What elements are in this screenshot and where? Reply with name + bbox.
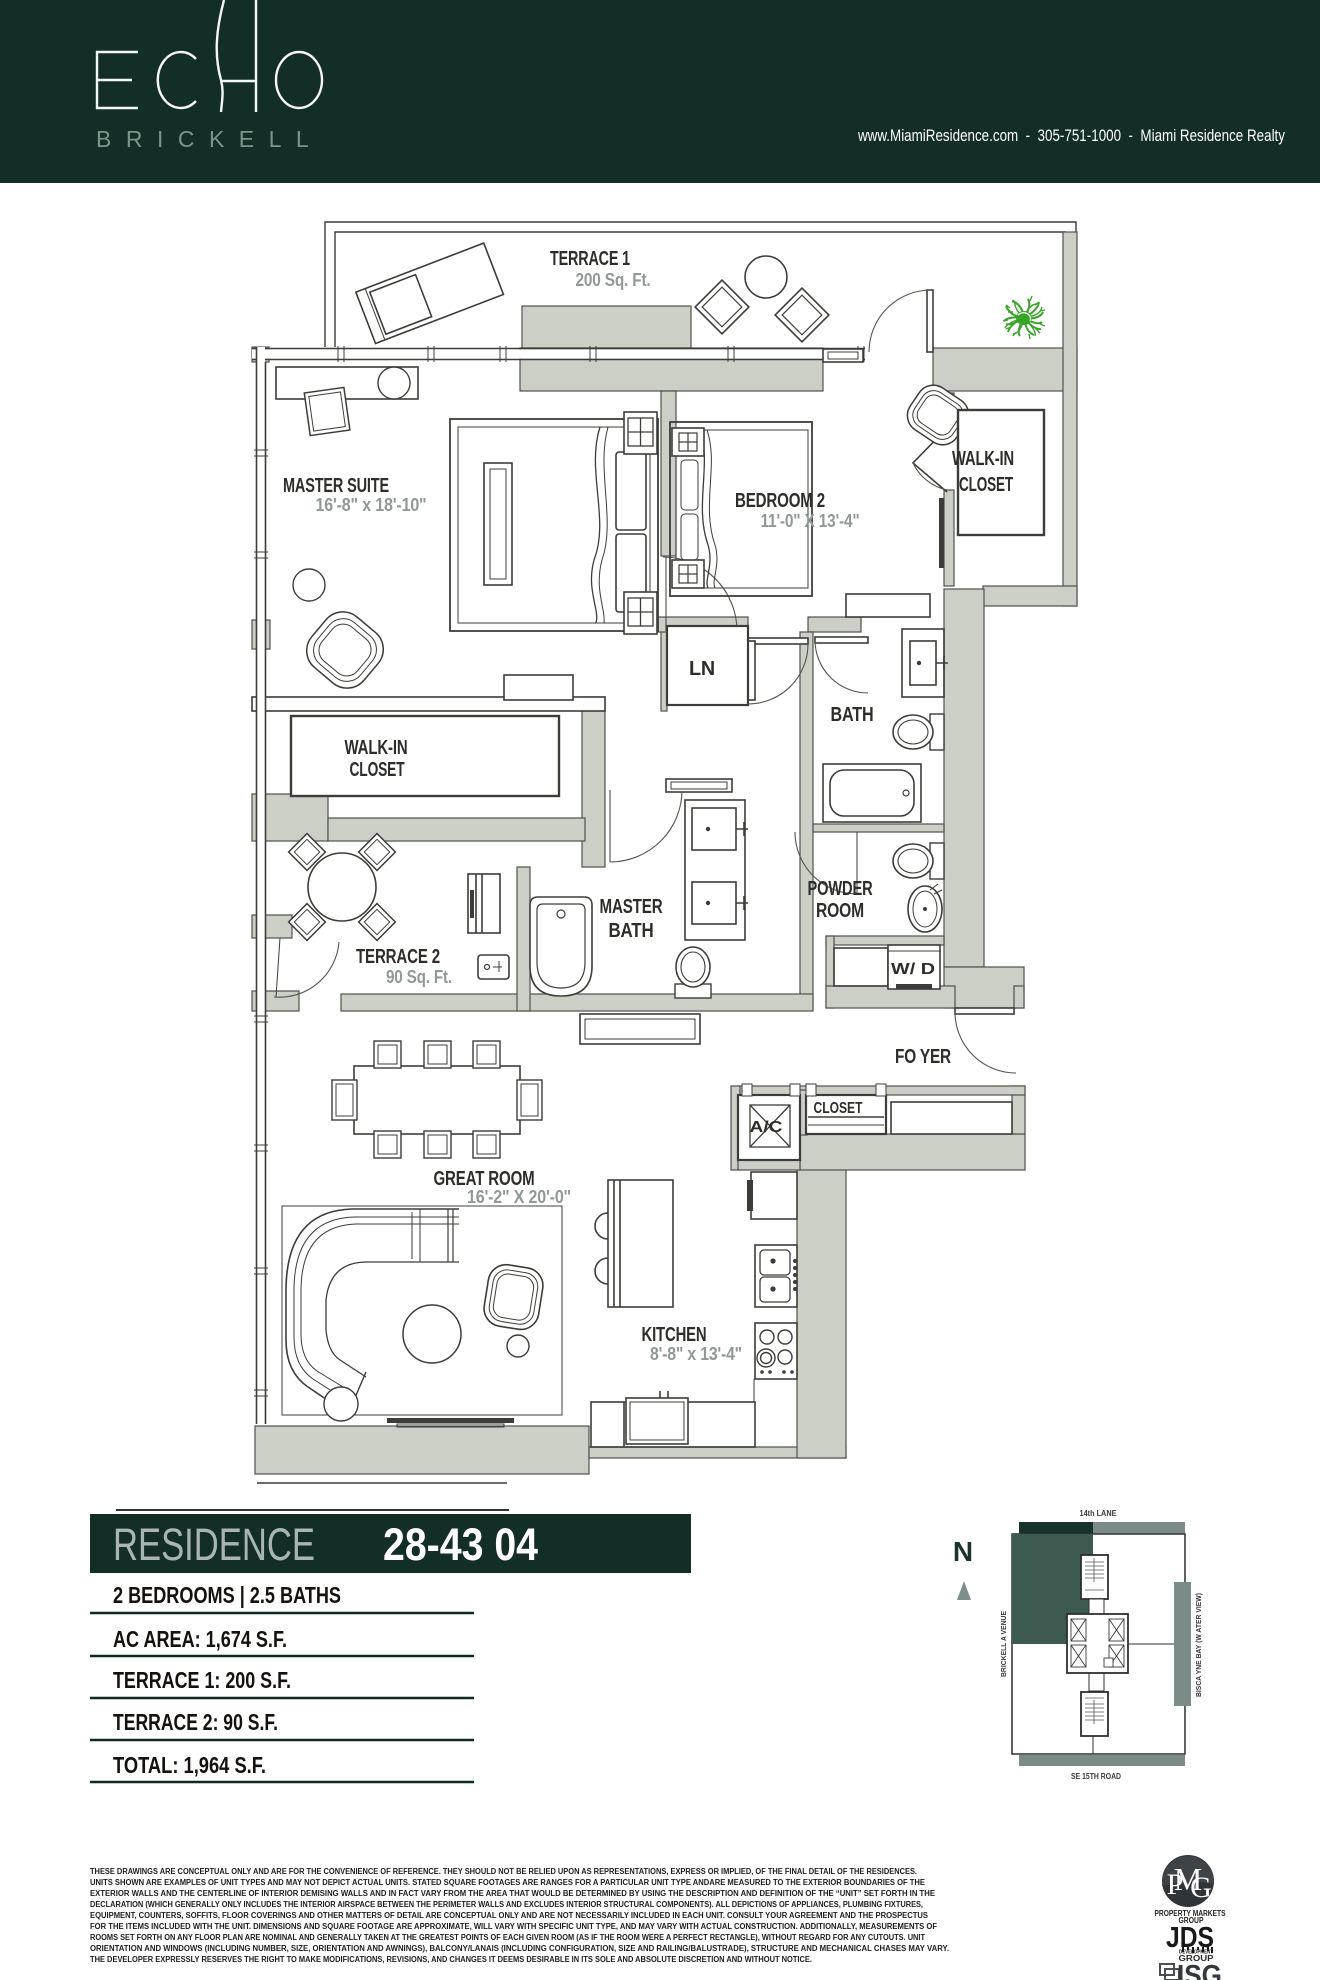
svg-text:BATH: BATH: [831, 704, 874, 726]
svg-text:200 Sq. Ft.: 200 Sq. Ft.: [576, 270, 651, 290]
svg-text:SE 15TH ROAD: SE 15TH ROAD: [1071, 1772, 1121, 1781]
svg-text:POWDER: POWDER: [808, 878, 874, 900]
svg-text:WALK-IN: WALK-IN: [345, 737, 408, 759]
svg-text:BATH: BATH: [609, 920, 654, 942]
svg-text:EQUIPMENT, COUNTERS, SOFFITS,: EQUIPMENT, COUNTERS, SOFFITS, FLOOR COVE…: [90, 1910, 928, 1920]
svg-text:90 Sq. Ft.: 90 Sq. Ft.: [386, 967, 452, 987]
svg-text:TERRACE 1: 200 S.F.: TERRACE 1: 200 S.F.: [113, 1667, 291, 1693]
svg-text:RESIDENCE: RESIDENCE: [113, 1519, 315, 1570]
svg-text:FOR THE ITEMS INCLUDED WITH TH: FOR THE ITEMS INCLUDED WITH THE UNIT. DI…: [90, 1921, 937, 1931]
svg-text:KITCHEN: KITCHEN: [642, 1324, 707, 1346]
svg-text:www.MiamiResidence.com - 305: www.MiamiResidence.com - 305-751-1000 - …: [857, 126, 1285, 145]
svg-text:W/ D: W/ D: [891, 961, 935, 978]
svg-text:BISCA YNE BAY (W ATER VIEW): BISCA YNE BAY (W ATER VIEW): [1196, 1593, 1203, 1697]
svg-text:14th LANE: 14th LANE: [1080, 1509, 1118, 1518]
svg-text:LN: LN: [689, 658, 715, 680]
svg-text:BRICKELL: BRICKELL: [96, 126, 323, 152]
svg-text:UNITS SHOWN ARE EXAMPLES OF UN: UNITS SHOWN ARE EXAMPLES OF UNIT TYPES A…: [90, 1877, 925, 1887]
svg-text:ISG: ISG: [1177, 1960, 1222, 1980]
svg-text:2 BEDROOMS | 2.5 BATHS: 2 BEDROOMS | 2.5 BATHS: [113, 1582, 341, 1608]
svg-text:ROOM: ROOM: [816, 900, 864, 922]
svg-text:16'-8" x 18'-10": 16'-8" x 18'-10": [316, 495, 427, 515]
svg-text:ORIENTATION AND WINDOWS (INCLU: ORIENTATION AND WINDOWS (INCLUDING NUMBE…: [90, 1943, 949, 1953]
svg-text:TERRACE 2: TERRACE 2: [356, 946, 440, 968]
svg-text:11'-0" X 13'-4": 11'-0" X 13'-4": [761, 511, 860, 531]
svg-text:ROOMS SET FORTH ON ANY FLOOR P: ROOMS SET FORTH ON ANY FLOOR PLAN ARE NO…: [90, 1932, 926, 1942]
svg-text:N: N: [953, 1536, 973, 1567]
svg-text:DECLARATION (WHICH GENERALLY O: DECLARATION (WHICH GENERALLY ONLY INCLUD…: [90, 1899, 923, 1909]
svg-text:TERRACE 1: TERRACE 1: [550, 248, 630, 270]
svg-text:8'-8" x 13'-4": 8'-8" x 13'-4": [650, 1344, 742, 1364]
svg-text:MASTER: MASTER: [600, 896, 664, 918]
svg-text:A/C: A/C: [750, 1119, 784, 1136]
svg-text:CLOSET: CLOSET: [350, 759, 405, 781]
svg-text:G: G: [1190, 1871, 1212, 1904]
svg-text:THE DEVELOPER EXPRESSLY RESERV: THE DEVELOPER EXPRESSLY RESERVES THE RIG…: [90, 1954, 812, 1964]
svg-text:CLOSET: CLOSET: [959, 474, 1013, 496]
svg-text:28-43 04: 28-43 04: [383, 1519, 538, 1570]
svg-text:TERRACE 2: 90 S.F.: TERRACE 2: 90 S.F.: [113, 1709, 278, 1735]
svg-text:TOTAL: 1,964 S.F.: TOTAL: 1,964 S.F.: [113, 1752, 266, 1778]
svg-text:16'-2" X 20'-0": 16'-2" X 20'-0": [467, 1187, 571, 1207]
svg-text:AC AREA: 1,674 S.F.: AC AREA: 1,674 S.F.: [113, 1626, 287, 1652]
svg-text:BRICKELL A VENUE: BRICKELL A VENUE: [1001, 1611, 1008, 1677]
svg-text:WALK-IN: WALK-IN: [952, 448, 1014, 470]
svg-text:FO YER: FO YER: [895, 1046, 952, 1068]
svg-text:CLOSET: CLOSET: [814, 1100, 863, 1117]
svg-text:BEDROOM 2: BEDROOM 2: [735, 490, 825, 512]
svg-text:EXTERIOR WALLS AND THE CENTERL: EXTERIOR WALLS AND THE CENTERLINE OF INT…: [90, 1888, 935, 1898]
svg-text:THESE DRAWINGS ARE CONCEPTUAL: THESE DRAWINGS ARE CONCEPTUAL ONLY AND A…: [90, 1866, 917, 1876]
svg-text:MASTER SUITE: MASTER SUITE: [283, 475, 389, 497]
